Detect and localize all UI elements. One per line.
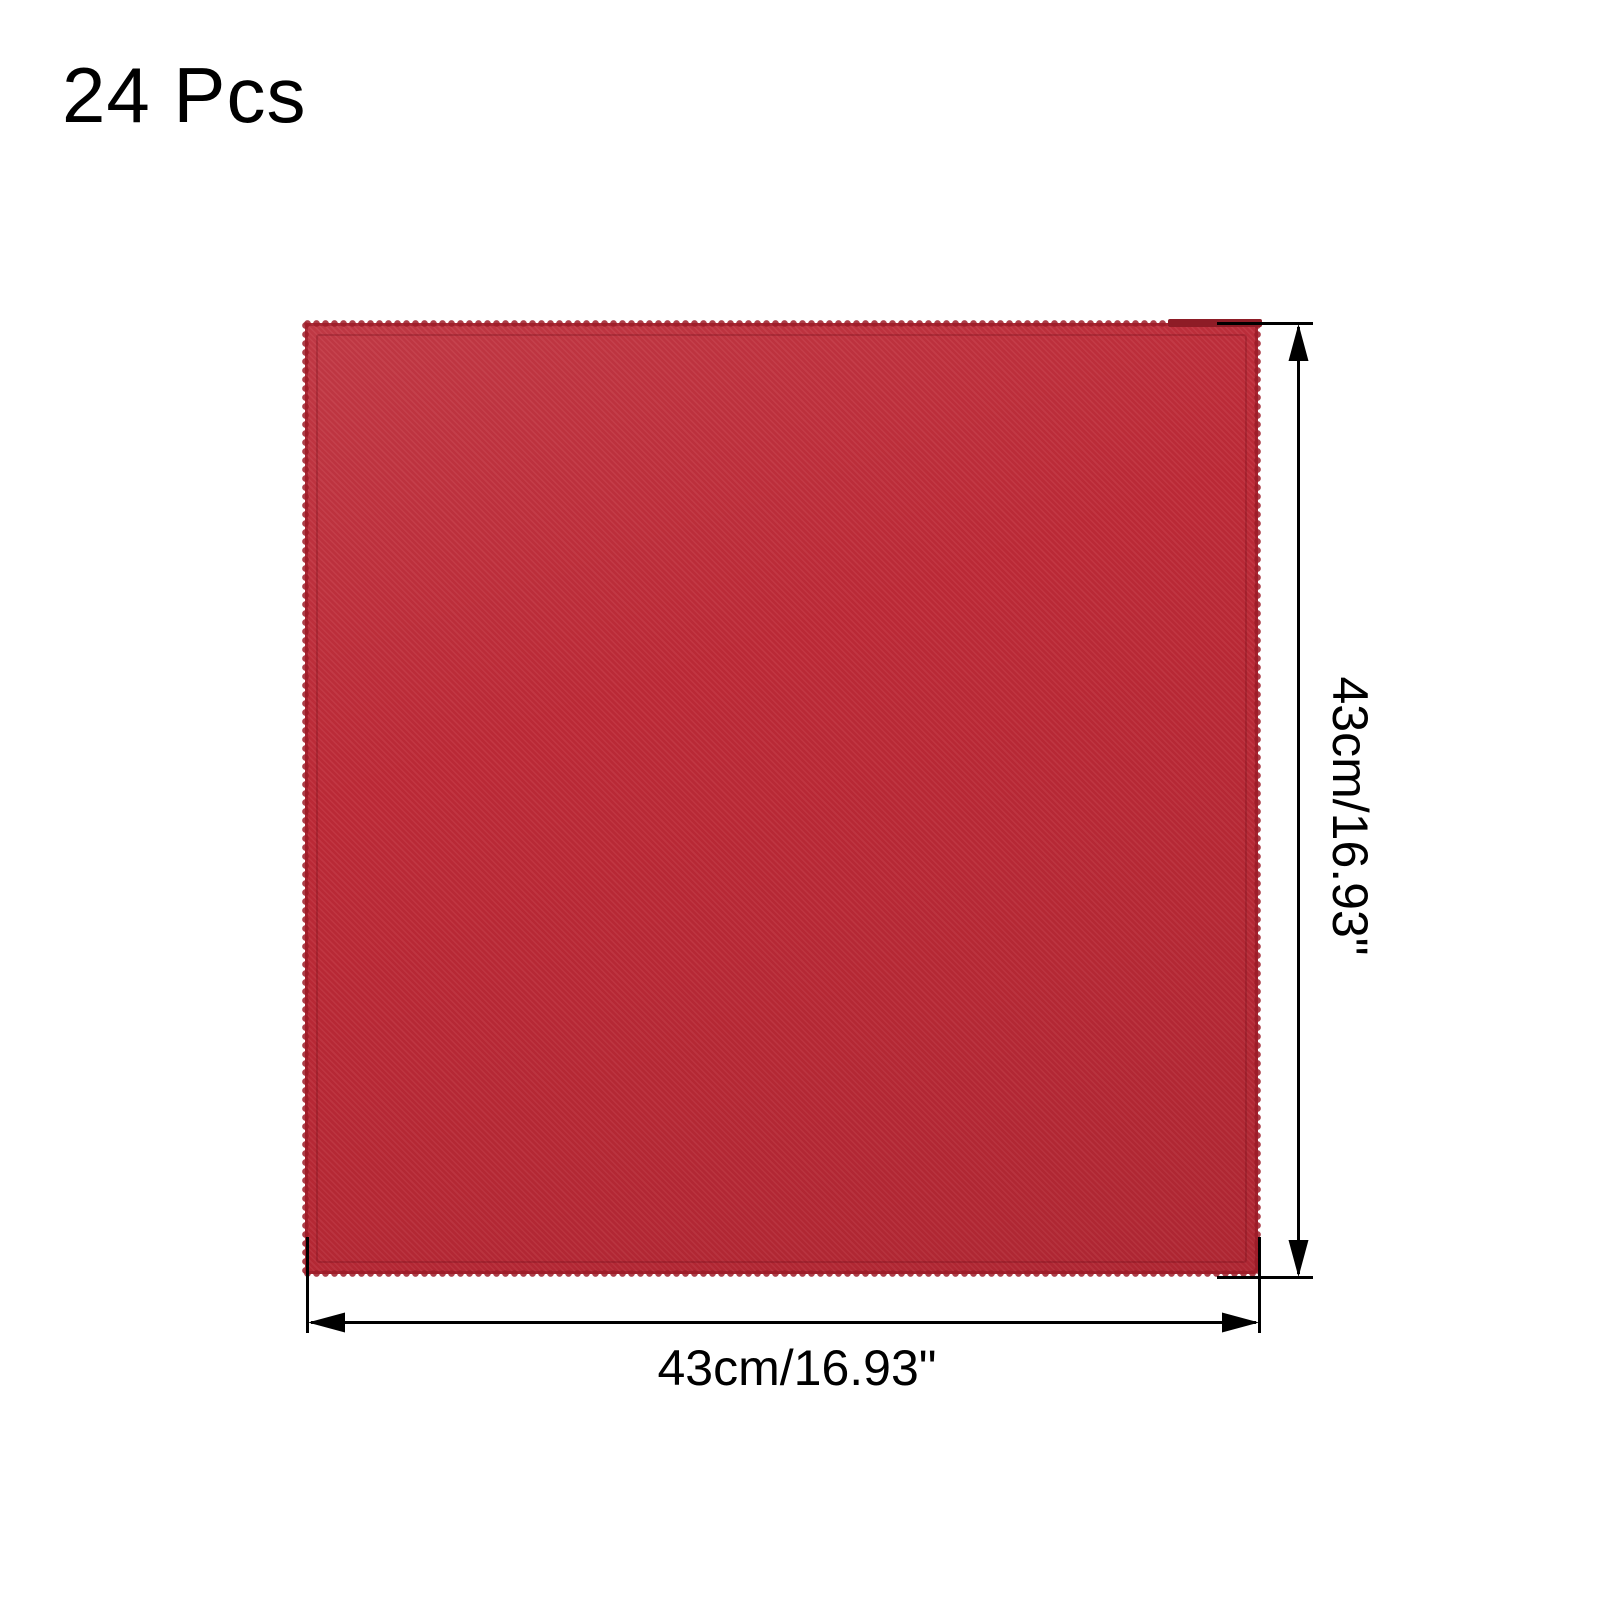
napkin-photo [305, 323, 1258, 1274]
arrow-right-icon [1222, 1313, 1259, 1333]
arrow-up-icon [1289, 324, 1309, 361]
height-dimension-label: 43cm/16.93" [1325, 676, 1375, 955]
arrow-down-icon [1289, 1240, 1309, 1277]
serrated-edge-bottom [303, 1269, 1260, 1278]
hem-stitch-line [316, 334, 1247, 1263]
arrow-left-icon [308, 1313, 345, 1333]
quantity-label: 24 Pcs [62, 56, 306, 134]
serrated-edge-top [303, 319, 1260, 328]
width-dimension-label: 43cm/16.93" [657, 1343, 936, 1393]
serrated-edge-right [1253, 321, 1262, 1276]
fabric-fold-tab [1168, 319, 1262, 327]
serrated-edge-left [301, 321, 310, 1276]
product-dimension-image: 24 Pcs 43cm/16.93" 43cm/16.93" [0, 0, 1600, 1600]
